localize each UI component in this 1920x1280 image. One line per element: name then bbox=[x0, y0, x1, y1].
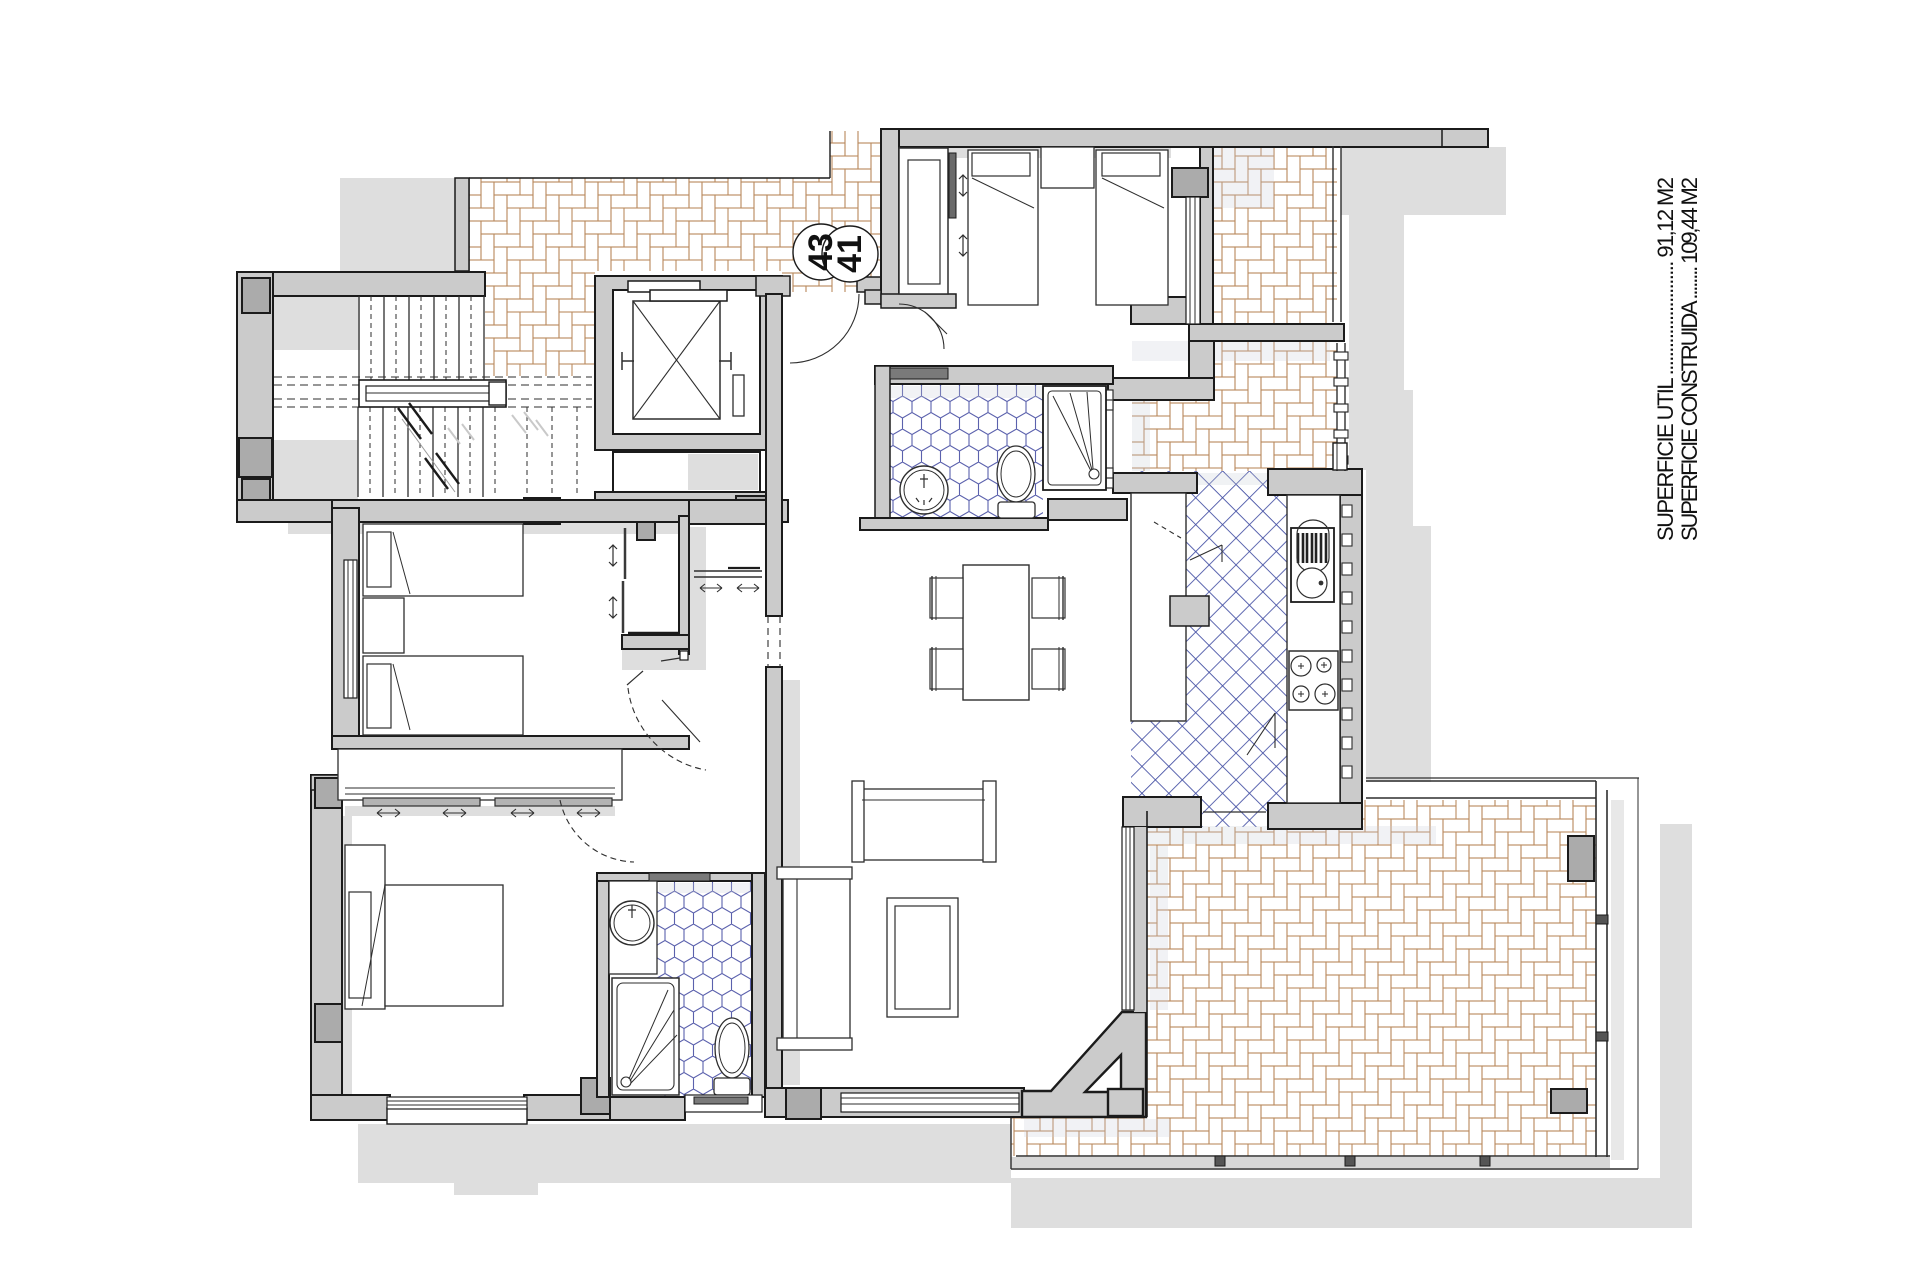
svg-text:SUPERFICIE UTIL ..............: SUPERFICIE UTIL ........................… bbox=[1653, 177, 1678, 541]
svg-text:SUPERFICIE CONSTRUIDA ........: SUPERFICIE CONSTRUIDA ........ 109,44 M2 bbox=[1677, 177, 1702, 541]
svg-text:41: 41 bbox=[831, 235, 869, 273]
